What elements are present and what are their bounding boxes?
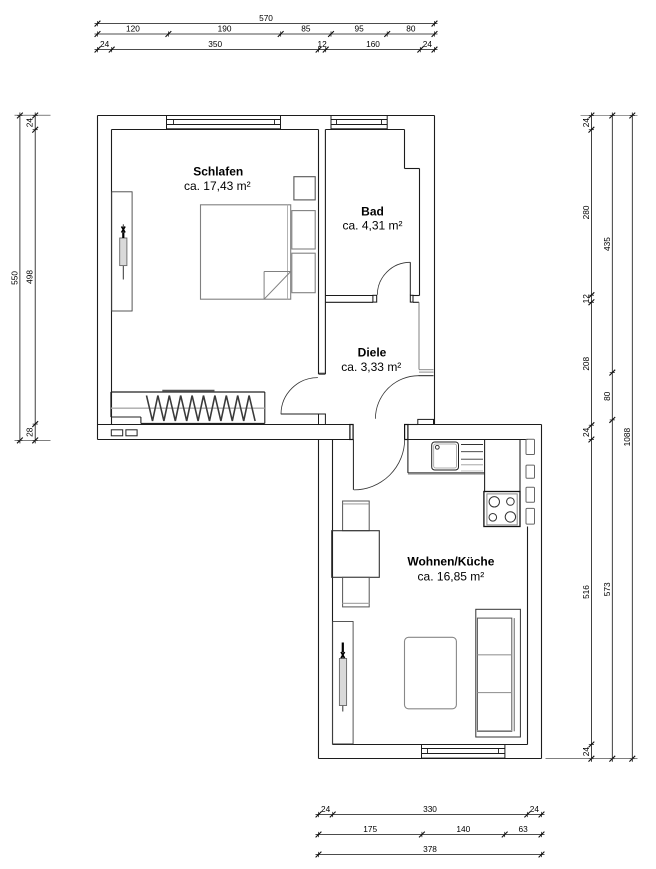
svg-text:Schlafen: Schlafen [193,165,243,179]
svg-text:140: 140 [456,824,470,834]
svg-text:63: 63 [518,824,528,834]
svg-text:24: 24 [530,804,540,814]
svg-text:190: 190 [218,24,232,34]
svg-text:Diele: Diele [358,346,387,360]
svg-text:80: 80 [602,391,612,401]
svg-text:550: 550 [9,271,19,285]
svg-text:120: 120 [126,24,140,34]
svg-text:24: 24 [581,118,591,128]
svg-text:ca. 4,31 m²: ca. 4,31 m² [342,219,402,233]
svg-text:498: 498 [25,270,35,284]
svg-text:208: 208 [581,356,591,370]
svg-text:330: 330 [423,804,437,814]
svg-text:Bad: Bad [361,204,384,218]
svg-text:95: 95 [354,24,364,34]
svg-text:24: 24 [321,804,331,814]
svg-text:ca. 16,85 m²: ca. 16,85 m² [418,569,485,583]
svg-text:24: 24 [100,39,110,49]
svg-text:24: 24 [423,39,433,49]
svg-text:280: 280 [581,205,591,219]
svg-text:80: 80 [406,24,416,34]
svg-text:573: 573 [602,582,612,596]
svg-text:24: 24 [581,747,591,757]
svg-text:ca. 3,33 m²: ca. 3,33 m² [341,360,401,374]
svg-text:ca. 17,43 m²: ca. 17,43 m² [184,179,251,193]
svg-text:570: 570 [259,13,273,23]
svg-text:516: 516 [581,585,591,599]
svg-text:175: 175 [363,824,377,834]
svg-text:85: 85 [301,24,311,34]
svg-text:24: 24 [25,118,35,128]
svg-text:12: 12 [318,39,328,49]
svg-text:435: 435 [602,237,612,251]
svg-text:350: 350 [208,39,222,49]
svg-text:24: 24 [581,427,591,437]
svg-text:Wohnen/Küche: Wohnen/Küche [407,555,494,569]
svg-text:1088: 1088 [622,427,632,446]
svg-text:28: 28 [25,427,35,437]
svg-text:12: 12 [581,294,591,304]
svg-text:378: 378 [423,844,437,854]
svg-text:160: 160 [366,39,380,49]
